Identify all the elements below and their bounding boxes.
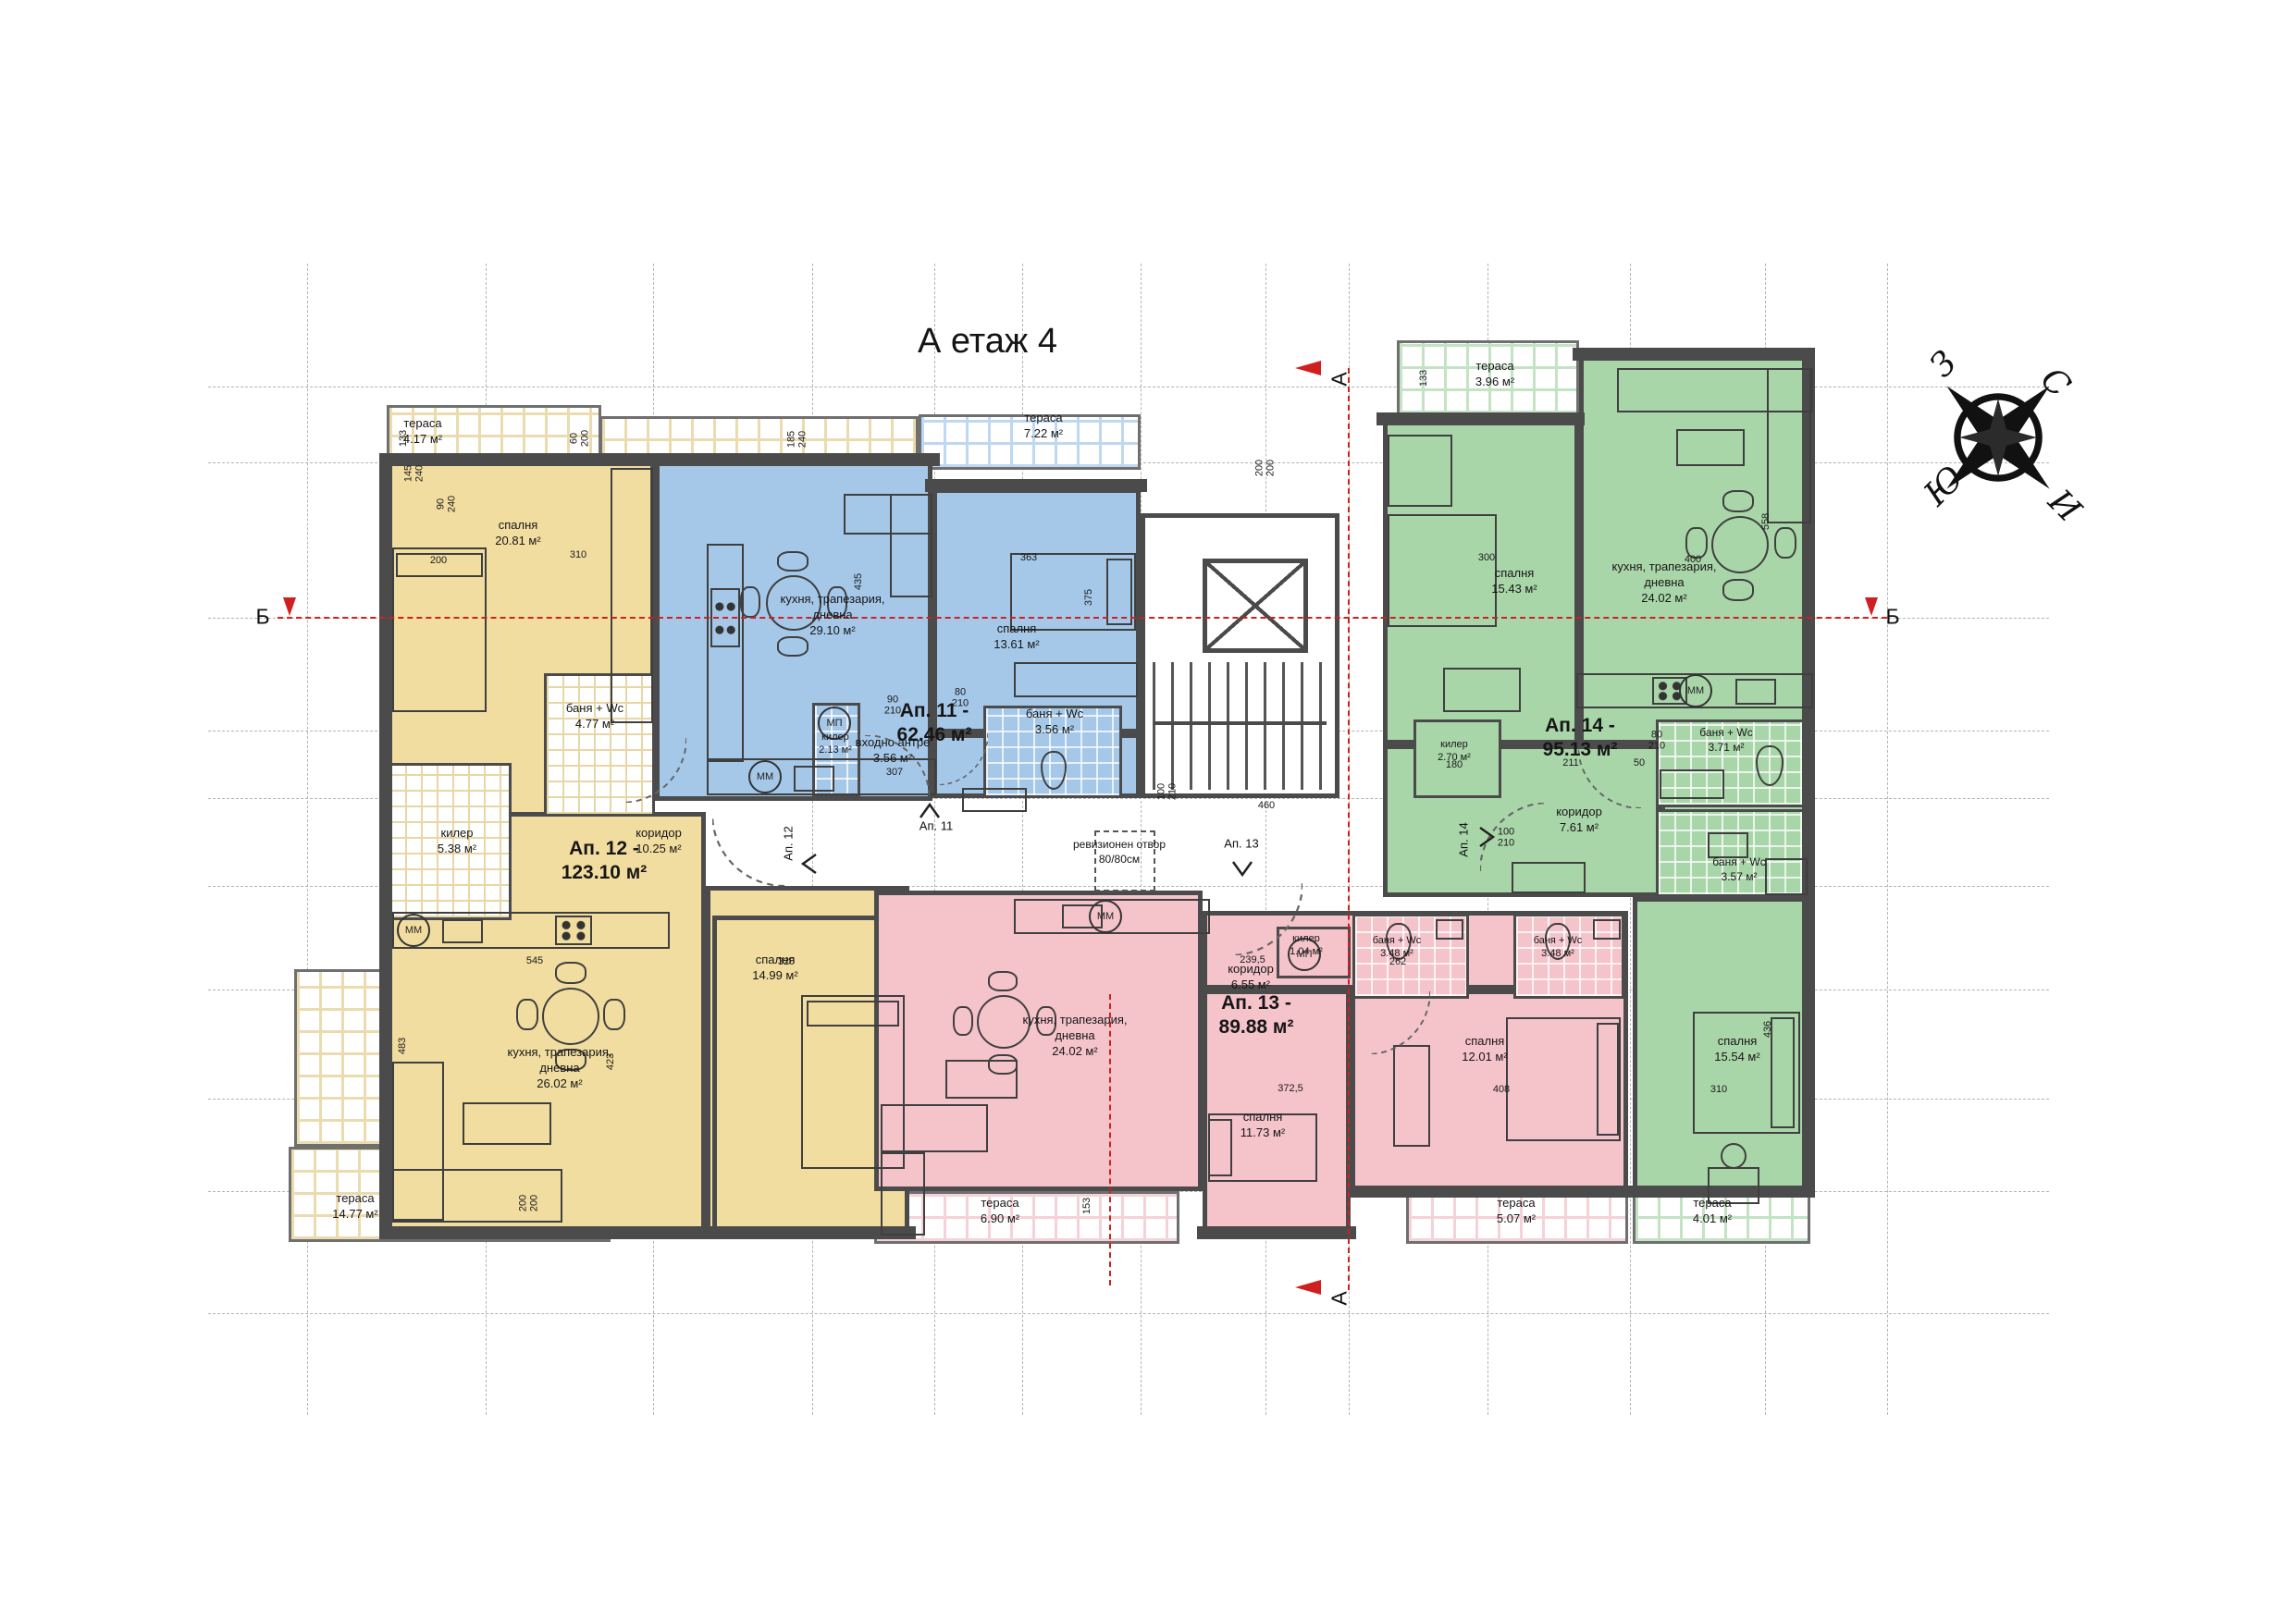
room-area: 3.57 м²: [1712, 870, 1765, 885]
room-area: 7.22 м²: [1024, 426, 1063, 442]
compass-rose: З С Ю И: [1901, 340, 2095, 535]
bath-sink: [1436, 919, 1463, 940]
pillow: [1597, 1023, 1619, 1136]
room-area: 4.77 м²: [566, 717, 623, 732]
section-letter-b-left: Б: [255, 605, 269, 630]
kitchen-counter: [392, 912, 670, 949]
room-label: баня + Wc3.48 м²: [1373, 934, 1422, 961]
room-area: 3.56 м²: [856, 751, 931, 767]
room-area: 5.38 м²: [438, 842, 476, 857]
stairs: [1153, 662, 1327, 790]
room-name: кухня, трапезария,: [1611, 559, 1716, 575]
dimension-label: 90 240: [436, 496, 457, 512]
dimension-label: 435: [854, 573, 865, 590]
dimension-label: 60 200: [569, 430, 590, 447]
room-label: входно антре3.56 м²: [856, 735, 931, 767]
grid-line-v: [1887, 264, 1888, 1415]
wall: [379, 453, 940, 466]
compass-east-label: И: [2040, 482, 2088, 530]
pillow: [807, 1001, 899, 1027]
entrance-arrow-icon: [918, 803, 942, 819]
room-label: килер5.38 м²: [438, 826, 476, 857]
room-label: спалня13.61 м²: [994, 621, 1039, 653]
apartment-number: Ап. 13 -: [1219, 991, 1294, 1015]
entrance-arrow-icon: [801, 852, 818, 876]
grid-line-v: [307, 264, 308, 1415]
room-label: спалня15.43 м²: [1491, 566, 1537, 597]
washing-machine-icon: ММ: [748, 760, 782, 793]
apartment-number: Ап. 12 -: [562, 837, 648, 861]
hob: [555, 916, 592, 945]
revision-opening-label: ревизионен отвор 80/80см: [1073, 838, 1166, 867]
chair: [1774, 527, 1796, 559]
entrance-label-ap13: Ап. 13: [1224, 837, 1258, 851]
room-label: тераса4.17 м²: [403, 416, 442, 448]
room-area: 26.02 м²: [507, 1076, 611, 1092]
room-name: спалня: [1714, 1034, 1759, 1050]
room-area: 2.70 м²: [1438, 751, 1471, 764]
dimension-label: 300: [1478, 553, 1495, 564]
entrance-label-ap11: Ап. 11: [920, 819, 953, 833]
sofa: [881, 1152, 925, 1236]
room-name: дневна: [1022, 1028, 1127, 1044]
dimension-label: 200 200: [518, 1195, 539, 1211]
room-label: баня + Wc3.71 м²: [1699, 726, 1752, 755]
dimension-label: 545: [526, 956, 543, 967]
room-name: тераса: [1475, 359, 1514, 375]
room-name: тераса: [1497, 1196, 1536, 1211]
room-label: кухня, трапезария,дневна26.02 м²: [507, 1045, 611, 1092]
dimension-label: 460: [1258, 801, 1275, 812]
room-name: спалня: [1462, 1034, 1507, 1050]
room-name: баня + Wc: [1026, 707, 1083, 722]
wardrobe: [611, 468, 653, 723]
dimension-label: 80 210: [1648, 730, 1665, 751]
room-area: 15.43 м²: [1491, 582, 1537, 597]
dimension-label: 133: [1419, 370, 1430, 387]
apartment-area: 95.13 м²: [1543, 738, 1618, 762]
door-arc: [712, 814, 784, 886]
room-label: килер1.04 м²: [1290, 932, 1323, 959]
sofa: [1767, 368, 1811, 523]
room-area: 29.10 м²: [780, 623, 884, 639]
grid-line-v: [1265, 264, 1266, 1415]
room-area: 1.04 м²: [1290, 945, 1323, 958]
terrace-ap12-left: [294, 969, 387, 1147]
entrance-label-ap14: Ап. 14: [1457, 822, 1471, 856]
wall: [1573, 348, 1815, 361]
bath-sink: [962, 788, 1027, 812]
sink: [1735, 679, 1776, 705]
room-name: кухня, трапезария,: [1022, 1013, 1127, 1028]
room-name: килер: [819, 731, 852, 744]
wall: [379, 1226, 916, 1239]
dimension-label: 483: [398, 1038, 409, 1054]
room-label: тераса4.01 м²: [1693, 1196, 1732, 1227]
room-name: коридор: [1228, 962, 1274, 977]
dimension-label: 100 210: [1498, 827, 1514, 848]
washing-machine-icon: ММ: [397, 914, 430, 947]
dimension-label: 363: [1020, 553, 1037, 564]
chair: [740, 586, 760, 618]
room-label: спалня11.73 м²: [1241, 1110, 1285, 1141]
door-arc: [1367, 991, 1430, 1054]
dining-table: [542, 988, 599, 1045]
room-area: 2.13 м²: [819, 744, 852, 756]
chair: [1721, 1143, 1747, 1169]
room-area: 3.96 м²: [1475, 375, 1514, 390]
grid-line-h: [208, 1313, 2049, 1314]
dimension-label: 153: [1082, 1198, 1093, 1214]
dimension-label: 100 210: [1156, 783, 1178, 800]
room-name: баня + Wc: [1534, 934, 1583, 947]
section-line-b: [278, 617, 1887, 619]
elevator-shaft: [1203, 559, 1308, 653]
shower: [1765, 858, 1808, 895]
entrance-arrow-icon: [1230, 860, 1254, 877]
bed: [1388, 514, 1497, 627]
room-name: дневна: [780, 608, 884, 623]
room-name: спалня: [994, 621, 1039, 637]
coffee-table: [945, 1060, 1018, 1099]
room-name: кухня, трапезария,: [780, 592, 884, 608]
room-area: 7.61 м²: [1556, 820, 1602, 836]
room-label: коридор10.25 м²: [636, 826, 682, 857]
room-label: тераса6.90 м²: [981, 1196, 1019, 1227]
dimension-label: 310: [570, 550, 586, 561]
room-label: спалня20.81 м²: [495, 518, 540, 549]
room-area: 6.55 м²: [1228, 977, 1274, 993]
revision-text: ревизионен отвор: [1073, 838, 1166, 853]
room-area: 24.02 м²: [1611, 591, 1716, 607]
section-arrow-icon: [1295, 1280, 1321, 1295]
chair: [988, 971, 1018, 991]
room-name: спалня: [1491, 566, 1537, 582]
room-label: спалня12.01 м²: [1462, 1034, 1507, 1065]
room-label: тераса7.22 м²: [1024, 411, 1063, 442]
door-arc: [622, 738, 686, 803]
room-area: 12.01 м²: [1462, 1050, 1507, 1065]
room-area: 3.48 м²: [1534, 947, 1583, 960]
section-letter-a-top: А: [1327, 372, 1352, 386]
chair: [777, 551, 809, 572]
room-label: баня + Wc3.56 м²: [1026, 707, 1083, 738]
room-label: спалня14.99 м²: [752, 953, 797, 984]
room-name: тераса: [981, 1196, 1019, 1211]
room-area: 13.61 м²: [994, 637, 1039, 653]
sofa: [890, 494, 932, 597]
room-label: спалня15.54 м²: [1714, 1034, 1759, 1065]
dimension-label: 200: [430, 556, 447, 567]
dimension-label: 145 240: [403, 465, 425, 482]
room-label: килер2.70 м²: [1438, 738, 1471, 765]
room-label: тераса5.07 м²: [1497, 1196, 1536, 1227]
chair: [1722, 579, 1754, 601]
chair: [555, 962, 586, 984]
room-area: 3.48 м²: [1373, 947, 1422, 960]
apartment-area: 123.10 м²: [562, 861, 648, 885]
compass-west-label: З: [1923, 344, 1965, 386]
wall: [379, 453, 392, 1239]
chair: [777, 636, 809, 657]
section-letter-a-bottom: А: [1327, 1291, 1352, 1305]
wall: [1376, 412, 1585, 425]
dimension-label: 372,5: [1278, 1084, 1303, 1095]
dimension-label: 436: [1763, 1021, 1774, 1038]
sink: [794, 766, 834, 792]
apartment-number: Ап. 11 -: [897, 699, 972, 723]
room-area: 3.56 м²: [1026, 722, 1083, 738]
dimension-label: 408: [1493, 1085, 1510, 1096]
dimension-label: 310: [1710, 1085, 1727, 1096]
dimension-label: 375: [1084, 589, 1095, 606]
room-area: 6.90 м²: [981, 1211, 1019, 1227]
chair: [516, 999, 538, 1030]
room-area: 14.99 м²: [752, 968, 797, 984]
pillow: [1106, 559, 1132, 625]
dimension-label: 307: [886, 768, 903, 779]
room-area: 10.25 м²: [636, 842, 682, 857]
bath-sink: [1708, 832, 1748, 858]
room-area: 14.77 м²: [332, 1207, 377, 1223]
room-name: входно антре: [856, 735, 931, 751]
page-title: А етаж 4: [918, 322, 1057, 362]
washing-machine-icon: ММ: [1089, 900, 1122, 933]
dimension-label: 185 240: [786, 431, 808, 448]
room-name: спалня: [1241, 1110, 1285, 1125]
washing-machine-icon: ММ: [1679, 674, 1712, 707]
section-letter-b-right: Б: [1885, 605, 1899, 630]
chair: [953, 1006, 973, 1036]
entrance-label-ap12: Ап. 12: [782, 826, 796, 860]
room-name: тераса: [1693, 1196, 1732, 1211]
room-label: баня + Wc3.48 м²: [1534, 934, 1583, 961]
wardrobe: [1014, 662, 1138, 697]
wardrobe: [1393, 1045, 1430, 1147]
pillow: [1771, 1017, 1795, 1128]
apartment-label-ap12: Ап. 12 - 123.10 м²: [562, 837, 648, 886]
apartment-label-ap14: Ап. 14 - 95.13 м²: [1543, 714, 1618, 763]
room-area: 24.02 м²: [1022, 1044, 1127, 1060]
room-name: спалня: [752, 953, 797, 968]
section-arrow-icon: [283, 597, 296, 616]
sofa: [881, 1104, 988, 1152]
wall: [1197, 1226, 1356, 1239]
apartment-area: 89.88 м²: [1219, 1015, 1294, 1039]
room-area: 20.81 м²: [495, 534, 540, 549]
room-name: килер: [438, 826, 476, 842]
room-name: килер: [1290, 932, 1323, 945]
room-area: 4.17 м²: [403, 432, 442, 448]
room-name: кухня, трапезария,: [507, 1045, 611, 1061]
wardrobe: [1443, 668, 1521, 712]
coffee-table: [1676, 429, 1745, 466]
room-label: тераса14.77 м²: [332, 1191, 377, 1223]
room-area: 11.73 м²: [1241, 1125, 1285, 1141]
room-label: кухня, трапезария,дневна24.02 м²: [1022, 1013, 1127, 1060]
room-name: килер: [1438, 738, 1471, 751]
bath-sink: [1593, 919, 1621, 940]
dimension-label: 558: [1761, 513, 1772, 530]
bed: [1388, 435, 1452, 507]
pillow: [1208, 1119, 1232, 1176]
dimension-label: 50: [1634, 758, 1645, 769]
stairs-rail: [1153, 721, 1327, 725]
room-label: коридор7.61 м²: [1556, 805, 1602, 836]
room-name: баня + Wc: [1712, 855, 1765, 870]
entrance-arrow-icon: [1478, 825, 1495, 849]
room-name: тераса: [332, 1191, 377, 1207]
kitchen-counter: [707, 544, 744, 762]
apartment-label-ap13: Ап. 13 - 89.88 м²: [1219, 991, 1294, 1040]
room-name: баня + Wc: [1699, 726, 1752, 741]
room-label: кухня, трапезария,дневна24.02 м²: [1611, 559, 1716, 607]
dimension-label: 200 200: [1254, 460, 1276, 476]
room-label: килер2.13 м²: [819, 731, 852, 757]
floor-plan: ревизионен отвор 80/80см А А Б Б А етаж …: [0, 0, 2296, 1623]
apartment-number: Ап. 14 -: [1543, 714, 1618, 738]
section-arrow-icon: [1295, 361, 1321, 375]
room-name: дневна: [1611, 575, 1716, 591]
section-arrow-icon: [1865, 597, 1878, 616]
section-line-a: [1348, 368, 1350, 1290]
room-name: коридор: [636, 826, 682, 842]
room-area: 5.07 м²: [1497, 1211, 1536, 1227]
chair: [603, 999, 625, 1030]
sink: [442, 919, 483, 943]
wall: [925, 479, 1147, 492]
revision-size: 80/80см: [1073, 853, 1166, 867]
chair: [1722, 490, 1754, 512]
room-name: баня + Wc: [566, 701, 623, 717]
room-label: кухня, трапезария,дневна29.10 м²: [780, 592, 884, 639]
room-name: коридор: [1556, 805, 1602, 820]
room-area: 4.01 м²: [1693, 1211, 1732, 1227]
room-name: тераса: [1024, 411, 1063, 426]
room-label: коридор6.55 м²: [1228, 962, 1274, 993]
bath-sink: [1660, 769, 1724, 799]
coffee-table: [463, 1102, 551, 1145]
room-name: дневна: [507, 1061, 611, 1076]
room-area: 3.71 м²: [1699, 741, 1752, 756]
room-name: тераса: [403, 416, 442, 432]
room-name: баня + Wc: [1373, 934, 1422, 947]
room-name: спалня: [495, 518, 540, 534]
room-area: 15.54 м²: [1714, 1050, 1759, 1065]
room-label: баня + Wc4.77 м²: [566, 701, 623, 732]
room-label: баня + Wc3.57 м²: [1712, 855, 1765, 884]
room-label: тераса3.96 м²: [1475, 359, 1514, 390]
